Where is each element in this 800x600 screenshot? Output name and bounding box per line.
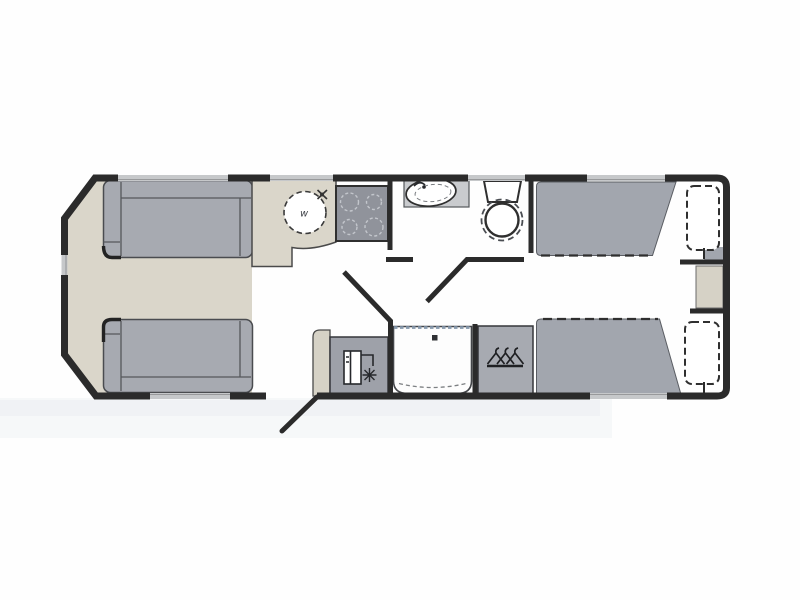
caravan-floorplan: w (0, 0, 800, 600)
sofa-bottom (104, 320, 253, 393)
sofa-top (104, 181, 253, 258)
floorplan-image: w (0, 0, 800, 600)
shower-drain-icon (432, 335, 438, 341)
bedside-cabinet (696, 266, 723, 308)
wardrobe (478, 326, 533, 394)
pillow-top (687, 186, 719, 250)
shower-cubicle (394, 327, 472, 394)
fridge-unit (313, 330, 388, 396)
pillow-bottom (685, 322, 719, 384)
kitchen-hob (336, 186, 388, 241)
sink-marking: w (300, 209, 309, 220)
bed-bottom (537, 319, 682, 395)
snowflake-icon (363, 368, 377, 382)
toilet (482, 181, 523, 241)
scan-noise (0, 398, 612, 438)
